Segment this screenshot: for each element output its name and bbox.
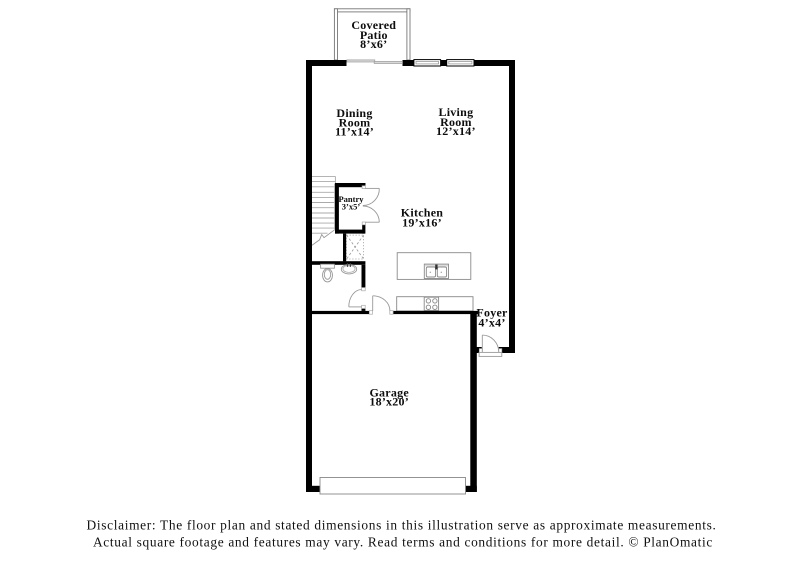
svg-text:18’x20’: 18’x20’: [369, 395, 409, 409]
svg-text:11’x14’: 11’x14’: [335, 125, 374, 139]
svg-text:Actual square footage and feat: Actual square footage and features may v…: [93, 535, 713, 550]
svg-text:12’x14’: 12’x14’: [436, 124, 476, 138]
svg-text:3’x5’: 3’x5’: [342, 201, 361, 211]
svg-text:19’x16’: 19’x16’: [402, 215, 442, 229]
svg-text:Disclaimer: The floor plan and: Disclaimer: The floor plan and stated di…: [87, 517, 717, 532]
svg-text:8’x6’: 8’x6’: [360, 37, 387, 51]
svg-text:4’x4’: 4’x4’: [478, 315, 505, 329]
